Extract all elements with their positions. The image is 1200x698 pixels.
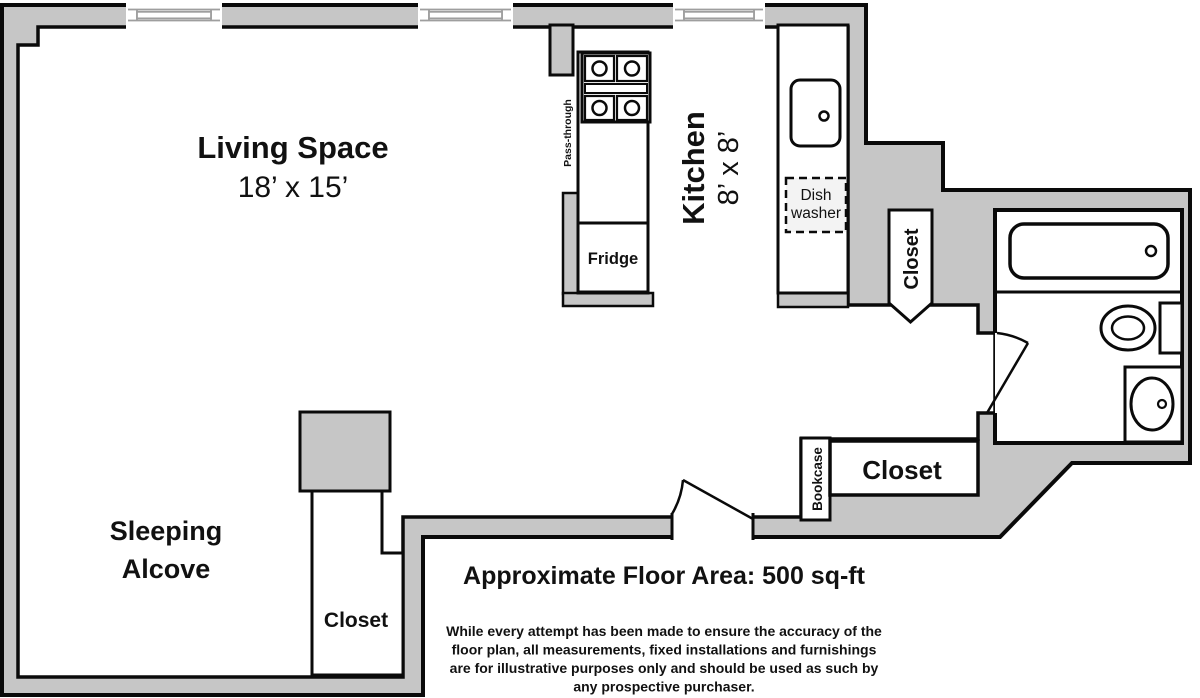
fridge-label: Fridge bbox=[588, 250, 638, 268]
bathtub-icon bbox=[1010, 224, 1168, 278]
disclaimer-line1: While every attempt has been made to ens… bbox=[446, 623, 882, 639]
kitchen-bottom-wall-right bbox=[778, 293, 848, 307]
kitchen-dims: 8’ x 8’ bbox=[713, 131, 745, 206]
window-sash bbox=[684, 12, 754, 19]
bathroom-sink-drain bbox=[1158, 400, 1166, 408]
disclaimer-line4: any prospective purchaser. bbox=[573, 679, 754, 695]
living-space-dims: 18’ x 15’ bbox=[238, 171, 349, 204]
toilet-tank bbox=[1160, 303, 1182, 353]
pass-through-label-group: Pass-through bbox=[562, 99, 574, 167]
window-sash bbox=[429, 12, 502, 19]
burner-icon bbox=[593, 62, 607, 76]
kitchen-closet-label-group: Closet bbox=[901, 228, 923, 289]
window-kitchen bbox=[673, 2, 765, 29]
burner-icon bbox=[625, 101, 639, 115]
sink-basin bbox=[791, 80, 840, 146]
window-living-2 bbox=[418, 2, 513, 29]
floor-plan-page: Living Space 18’ x 15’ Kitchen 8’ x 8’ P… bbox=[0, 0, 1200, 698]
floor-area-text: Approximate Floor Area: 500 sq-ft bbox=[463, 562, 866, 590]
alcove-partition-wall bbox=[300, 412, 390, 491]
window-living-1 bbox=[126, 2, 222, 29]
bathtub-drain bbox=[1146, 246, 1156, 256]
closet-hall-label: Closet bbox=[862, 455, 942, 485]
stove-icon bbox=[582, 53, 650, 122]
dishwasher-label-line1: Dish bbox=[800, 187, 831, 204]
burner-icon bbox=[593, 101, 607, 115]
bathroom bbox=[987, 210, 1182, 443]
door-opening bbox=[671, 509, 753, 542]
floor-plan-drawing: Living Space 18’ x 15’ Kitchen 8’ x 8’ P… bbox=[0, 0, 1200, 698]
disclaimer-line2: floor plan, all measurements, fixed inst… bbox=[452, 642, 877, 658]
living-space-title: Living Space bbox=[197, 130, 388, 165]
stove-middle-strip bbox=[585, 84, 647, 93]
sleeping-alcove-line2: Alcove bbox=[122, 554, 211, 584]
kitchen-bottom-wall-left bbox=[563, 293, 653, 306]
closet-alcove-label: Closet bbox=[324, 609, 388, 632]
sink-drain bbox=[820, 112, 829, 121]
kitchen-sink-icon bbox=[791, 80, 840, 146]
bookcase-label: Bookcase bbox=[810, 447, 825, 511]
disclaimer-line3: are for illustrative purposes only and s… bbox=[450, 660, 879, 676]
closet-kitchen-label: Closet bbox=[901, 228, 923, 289]
toilet-bowl-inner bbox=[1112, 317, 1144, 340]
bookcase-label-group: Bookcase bbox=[810, 447, 825, 511]
sleeping-alcove-line1: Sleeping bbox=[110, 516, 223, 546]
pass-through-wall-stub bbox=[550, 25, 573, 75]
kitchen-side-wall-stub bbox=[563, 193, 578, 294]
dishwasher-label-line2: washer bbox=[790, 205, 841, 222]
burner-icon bbox=[625, 62, 639, 76]
pass-through-label: Pass-through bbox=[562, 99, 574, 167]
kitchen-title: Kitchen bbox=[676, 111, 711, 225]
window-sash bbox=[137, 12, 211, 19]
kitchen-counter-right bbox=[778, 25, 848, 293]
